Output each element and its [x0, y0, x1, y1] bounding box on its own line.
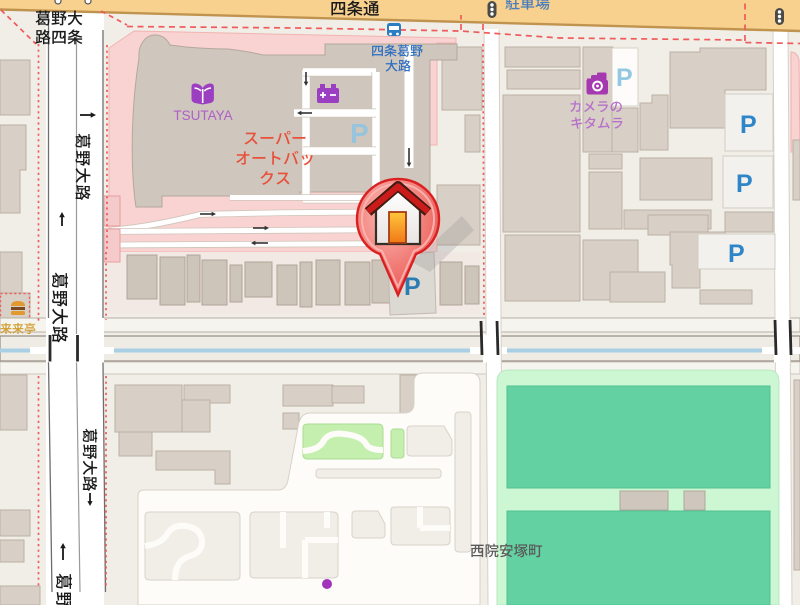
svg-text:P: P	[728, 240, 745, 268]
svg-text:TSUTAYA: TSUTAYA	[173, 108, 232, 123]
svg-text:P: P	[616, 64, 633, 92]
svg-text:P: P	[740, 111, 757, 139]
svg-text:P: P	[350, 118, 369, 149]
svg-text:P: P	[736, 170, 753, 198]
